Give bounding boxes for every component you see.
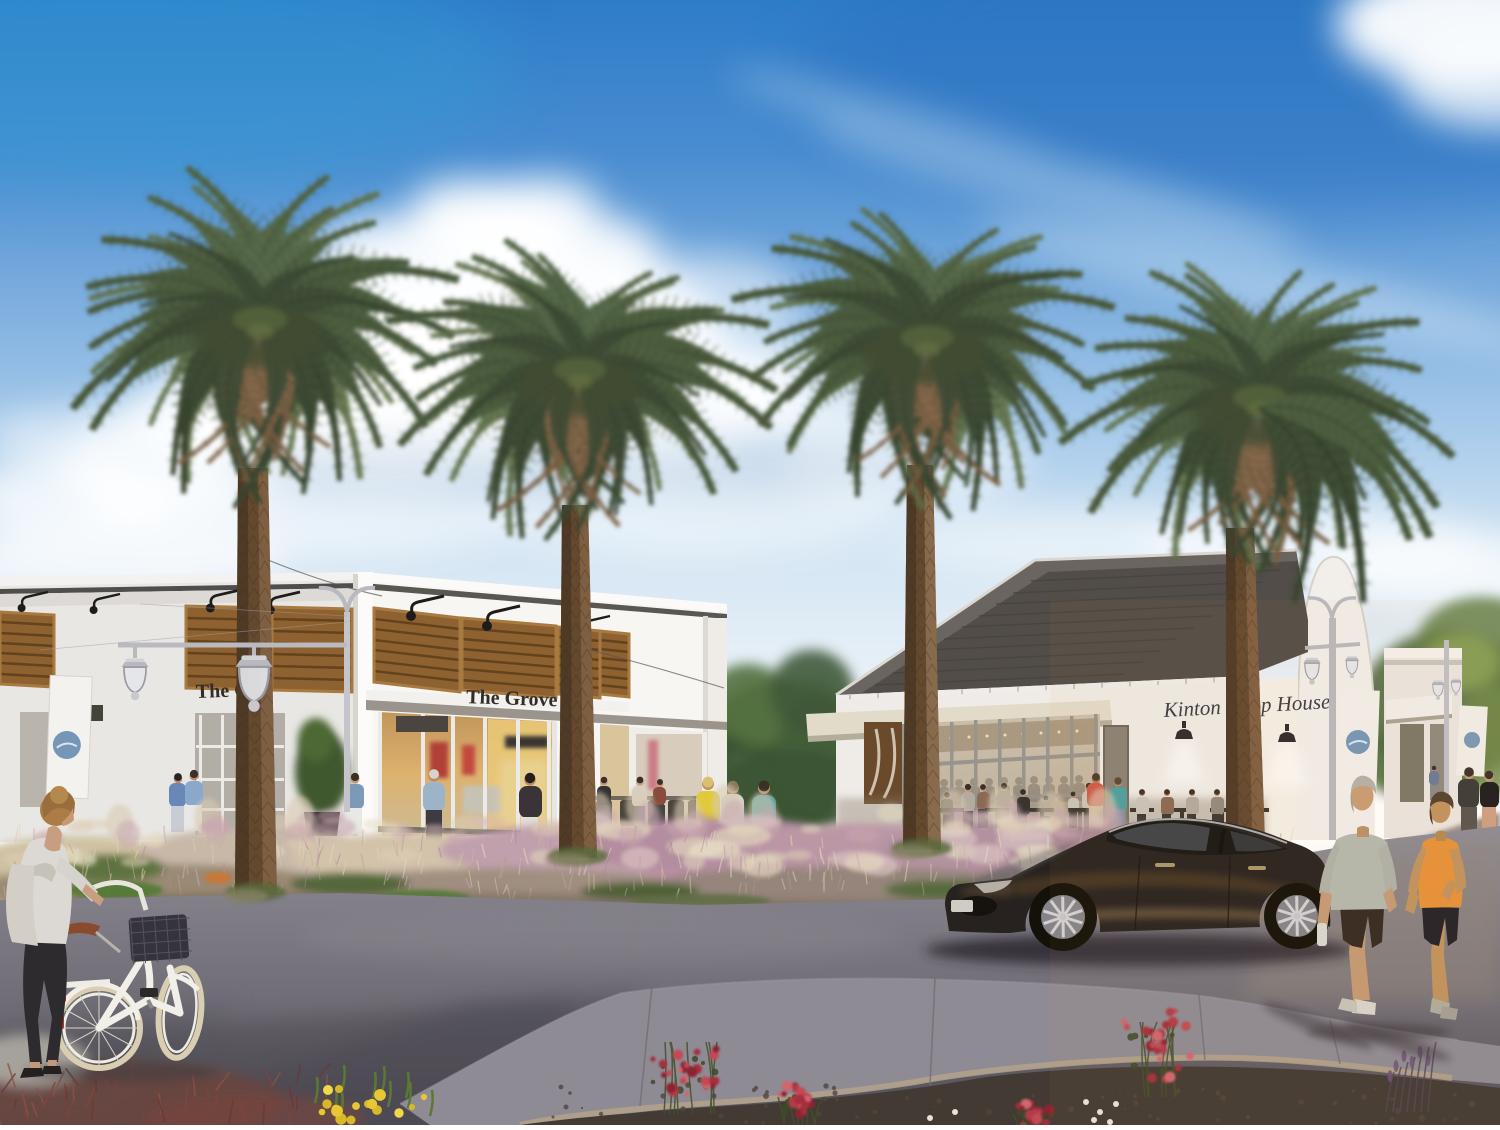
- svg-text:The Grove: The Grove: [466, 686, 558, 711]
